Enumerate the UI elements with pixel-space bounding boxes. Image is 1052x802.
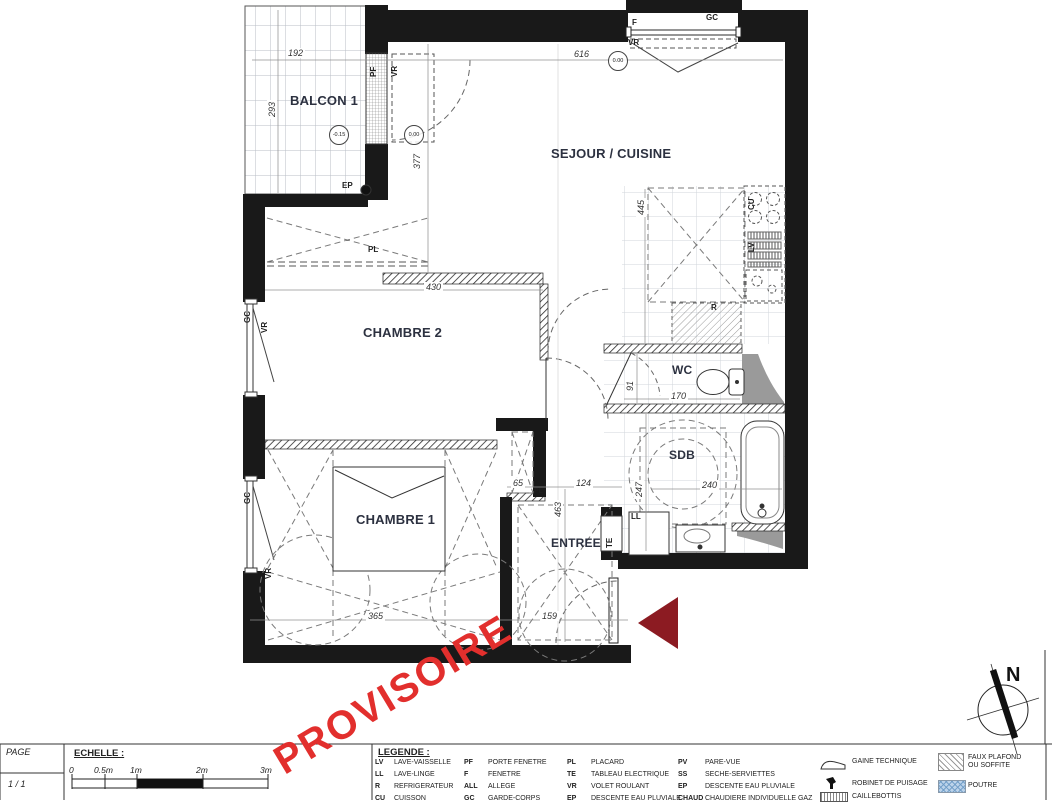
refrigerator-zone — [672, 303, 741, 344]
tag-pl-chambre2: PL — [368, 246, 378, 254]
tag-vr-window2: VR — [265, 572, 276, 590]
legend-label: PARE-VUE — [705, 759, 740, 766]
tag-vr-balcon: VR — [391, 70, 402, 88]
scale-title: ECHELLE : — [74, 748, 124, 759]
room-label-entree: ENTREE — [551, 536, 601, 550]
tag-pf: PF — [370, 70, 380, 88]
dim-124: 124 — [574, 478, 593, 488]
dim-293: 293 — [267, 114, 286, 132]
dim-65: 65 — [511, 478, 525, 488]
room-label-balcon: BALCON 1 — [290, 93, 358, 108]
legend-abbr: CHAUD — [678, 795, 703, 802]
scale-bar — [72, 774, 268, 789]
legend-label: DESCENTE EAU PLUVIALE — [591, 795, 681, 802]
legend-abbr: SS — [678, 771, 687, 778]
legend-abbr: TE — [567, 771, 576, 778]
rainwater-pipe — [361, 185, 371, 195]
toilet — [697, 369, 744, 395]
legend-abbr: PL — [567, 759, 576, 766]
dim-616: 616 — [572, 49, 591, 59]
tag-gc-window1: GC — [244, 316, 256, 334]
legend-label-poutre: POUTRE — [968, 782, 997, 789]
tag-ll: LL — [631, 513, 641, 521]
level-marker-balcon: -0.15 — [329, 125, 349, 145]
floorplan-sheet: { "watermark": "PROVISOIRE", "compass_n"… — [0, 0, 1052, 800]
scale-tick-05m: 0.5m — [94, 765, 113, 775]
legend-label: SECHE-SERVIETTES — [705, 771, 775, 778]
tag-vr-top: VR — [628, 39, 639, 47]
legend-abbr: EP — [678, 783, 687, 790]
north-label: N — [1006, 664, 1020, 687]
dim-377: 377 — [412, 166, 431, 184]
legend-label: VOLET ROULANT — [591, 783, 649, 790]
floor-plan-drawing — [0, 0, 1052, 800]
room-label-chambre1: CHAMBRE 1 — [356, 512, 435, 527]
dim-240: 240 — [700, 480, 719, 490]
page-number: 1 / 1 — [8, 779, 26, 789]
legend-label-gaine: GAINE TECHNIQUE — [852, 758, 917, 765]
title-block-frame — [0, 650, 1052, 800]
page-box-label: PAGE — [6, 747, 30, 757]
tag-f-top: F — [632, 19, 637, 27]
tag-cu: CU — [748, 203, 760, 221]
legend-label: PLACARD — [591, 759, 624, 766]
tag-te: TE — [606, 541, 616, 559]
legend-label: ALLEGE — [488, 783, 515, 790]
legend-label: GARDE-CORPS — [488, 795, 540, 802]
scale-tick-2m: 2m — [196, 765, 208, 775]
scale-tick-3m: 3m — [260, 765, 272, 775]
legend-abbr: CU — [375, 795, 385, 802]
bathtub — [741, 421, 784, 524]
dim-159: 159 — [540, 611, 559, 621]
legend-label: CHAUDIERE INDIVIDUELLE GAZ — [705, 795, 812, 802]
legend-label: FENETRE — [488, 771, 521, 778]
room-label-sejour: SEJOUR / CUISINE — [551, 146, 671, 161]
dim-247: 247 — [634, 494, 653, 512]
dim-445: 445 — [636, 212, 655, 230]
legend-abbr: EP — [567, 795, 576, 802]
legend-label: REFRIGERATEUR — [394, 783, 453, 790]
tag-gc-top: GC — [706, 14, 718, 22]
tag-lv: LV — [748, 245, 758, 263]
tag-r: R — [711, 304, 717, 312]
faux-plafond-icon — [938, 753, 964, 771]
legend-title: LEGENDE : — [378, 747, 430, 758]
legend-label-caillebottis: CAILLEBOTTIS — [852, 793, 901, 800]
room-label-wc: WC — [672, 363, 692, 377]
legend-abbr: F — [464, 771, 468, 778]
scale-tick-1m: 1m — [130, 765, 142, 775]
dim-463: 463 — [553, 514, 572, 532]
legend-abbr: VR — [567, 783, 577, 790]
dim-91: 91 — [625, 388, 639, 406]
room-label-sdb: SDB — [669, 448, 695, 462]
north-compass — [967, 664, 1039, 754]
legend-label: TABLEAU ELECTRIQUE — [591, 771, 669, 778]
legend-abbr: ALL — [464, 783, 478, 790]
legend-abbr: LL — [375, 771, 384, 778]
legend-label-robinet: ROBINET DE PUISAGE — [852, 780, 928, 787]
level-marker-sejour-door: 0.00 — [404, 125, 424, 145]
legend-label: DESCENTE EAU PLUVIALE — [705, 783, 795, 790]
legend-label: LAVE-VAISSELLE — [394, 759, 451, 766]
legend-abbr: LV — [375, 759, 383, 766]
dim-192: 192 — [286, 48, 305, 58]
legend-label: CUISSON — [394, 795, 426, 802]
legend-abbr: PV — [678, 759, 687, 766]
legend-abbr: GC — [464, 795, 475, 802]
poutre-icon — [938, 780, 966, 793]
dim-170: 170 — [669, 391, 688, 401]
tag-ep: EP — [342, 182, 353, 190]
legend-abbr: R — [375, 783, 380, 790]
bathroom-sink — [676, 525, 725, 552]
legend-label: PORTE FENETRE — [488, 759, 547, 766]
level-marker-sejour-top: 0.00 — [608, 51, 628, 71]
legend-abbr: PF — [464, 759, 473, 766]
dim-430: 430 — [424, 282, 443, 292]
room-label-chambre2: CHAMBRE 2 — [363, 325, 442, 340]
tag-pl-entree: PL — [534, 488, 543, 496]
tag-gc-window2: GC — [244, 497, 256, 515]
legend-symbol-shapes — [821, 761, 845, 789]
legend-label: LAVE-LINGE — [394, 771, 435, 778]
entry-arrow — [638, 597, 678, 649]
dim-365: 365 — [366, 611, 385, 621]
tag-vr-window1: VR — [261, 326, 272, 344]
scale-tick-0: 0 — [69, 765, 74, 775]
caillebottis-icon — [820, 792, 848, 802]
legend-label-faux-plafond: FAUX PLAFOND OU SOFFITE — [968, 754, 1030, 770]
